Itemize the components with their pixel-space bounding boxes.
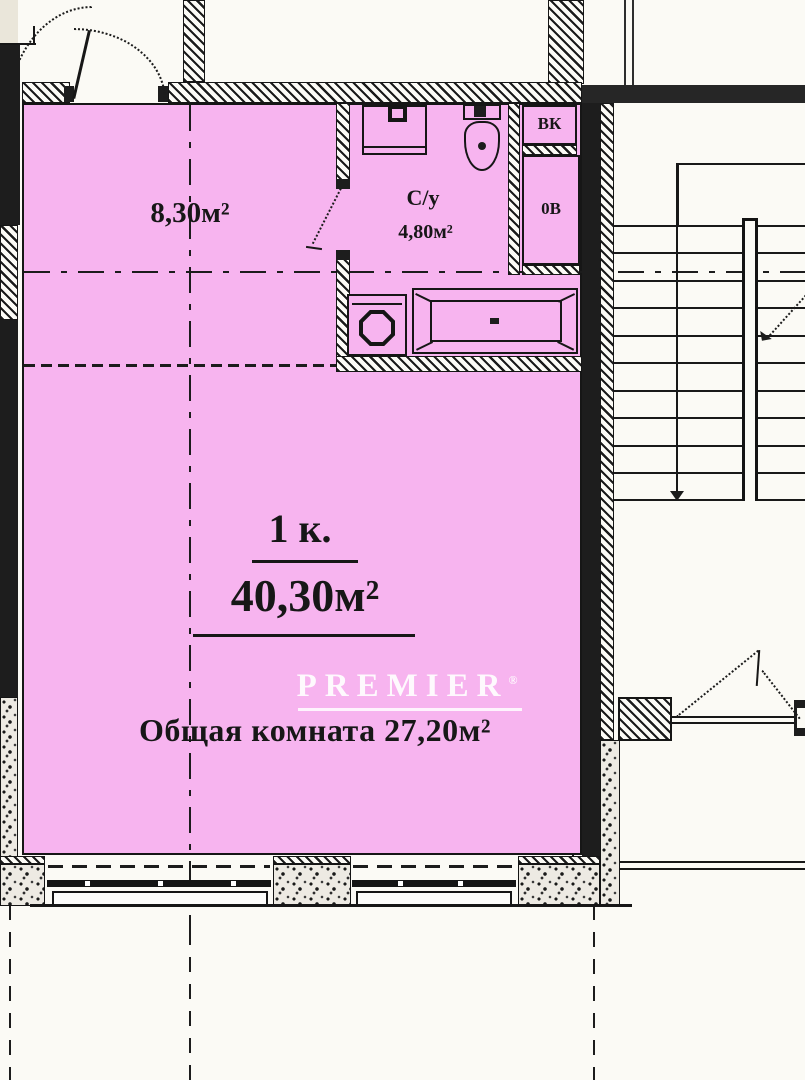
bathtub-drain bbox=[490, 318, 499, 324]
stair-tread bbox=[614, 445, 805, 447]
faucet-icon bbox=[388, 105, 407, 122]
bathroom-area-label: 4,80м² bbox=[378, 222, 473, 243]
window-mullion bbox=[85, 881, 90, 886]
stairwell-wall bbox=[600, 103, 614, 740]
wall-segment bbox=[548, 0, 584, 84]
door-leaf bbox=[756, 650, 761, 686]
door-swing bbox=[761, 670, 800, 719]
axis-line bbox=[24, 271, 805, 273]
washing-machine-lid bbox=[352, 303, 402, 305]
room-type-label: 1 к. bbox=[240, 508, 360, 550]
stair-tread bbox=[614, 390, 805, 392]
balcony-slab-line bbox=[30, 904, 632, 907]
threshold-line bbox=[672, 722, 796, 724]
bathroom-wall bbox=[336, 103, 350, 187]
threshold-line bbox=[672, 716, 796, 718]
exterior-wall-left bbox=[0, 225, 18, 320]
wall-segment bbox=[620, 868, 805, 870]
stair-tread bbox=[614, 472, 805, 474]
wall-segment bbox=[620, 861, 805, 863]
stair-tread bbox=[614, 417, 805, 419]
watermark: PREMIER® bbox=[282, 668, 532, 705]
label-underline bbox=[193, 634, 415, 637]
door-swing bbox=[676, 650, 759, 718]
room-divider-line bbox=[24, 364, 336, 367]
room-caption-label: Общая комната 27,20м² bbox=[80, 714, 550, 748]
window-mullion bbox=[158, 881, 163, 886]
stair-tread bbox=[614, 307, 805, 309]
stair-tread bbox=[614, 252, 805, 254]
room-area-label: 40,30м² bbox=[185, 572, 425, 620]
door-jamb bbox=[336, 250, 350, 260]
stair-tread bbox=[614, 280, 805, 282]
stair-direction-line bbox=[767, 295, 805, 339]
arrowhead-icon bbox=[760, 329, 772, 341]
wall-segment bbox=[624, 0, 626, 85]
washing-machine-drum-inner bbox=[363, 314, 391, 342]
hallway-area-label: 8,30м² bbox=[100, 198, 280, 228]
window-frame bbox=[352, 880, 516, 887]
bathroom-name-label: С/у bbox=[388, 186, 458, 209]
wall-segment bbox=[508, 103, 520, 275]
wall-segment bbox=[522, 145, 577, 155]
vent-shaft-ov-label: 0В bbox=[522, 200, 580, 218]
bathroom-wall bbox=[336, 356, 582, 372]
exterior-wall-left bbox=[0, 45, 20, 225]
entry-door-swing bbox=[74, 28, 166, 100]
wall-pier bbox=[518, 864, 600, 906]
window-sill bbox=[273, 856, 351, 864]
window bbox=[48, 865, 270, 868]
label-underline bbox=[252, 560, 358, 563]
window-sill bbox=[0, 856, 45, 864]
toilet-drain bbox=[478, 142, 486, 150]
wall-pier bbox=[0, 864, 45, 906]
stair-landing bbox=[677, 163, 805, 225]
exterior-wall-left bbox=[0, 320, 18, 697]
exterior-wall-right bbox=[582, 103, 600, 905]
wall-segment bbox=[618, 697, 672, 741]
stair-tread bbox=[614, 499, 805, 501]
wall-segment bbox=[22, 82, 70, 103]
vent-shaft-vk-label: ВК bbox=[522, 115, 577, 133]
window-mullion bbox=[398, 881, 403, 886]
stair-tread bbox=[614, 335, 805, 337]
watermark-underline bbox=[298, 708, 522, 711]
stair-guide-line bbox=[676, 163, 678, 493]
wall-segment bbox=[632, 0, 634, 85]
toilet-button bbox=[474, 106, 486, 117]
floor-plan: ВК 0В bbox=[0, 0, 805, 1080]
wall-segment bbox=[522, 265, 580, 275]
window-mullion bbox=[231, 881, 236, 886]
stairwell-wall bbox=[600, 740, 620, 905]
wall-segment bbox=[183, 0, 205, 82]
stair-tread bbox=[614, 362, 805, 364]
axis-line bbox=[593, 905, 595, 1080]
wall-pier bbox=[273, 864, 351, 906]
stair-tread bbox=[614, 225, 805, 227]
window-mullion bbox=[458, 881, 463, 886]
exterior-wall-left bbox=[0, 697, 18, 857]
watermark-text: PREMIER bbox=[297, 668, 509, 704]
corner-strip bbox=[0, 0, 18, 45]
door-jamb bbox=[336, 179, 350, 189]
wall-segment bbox=[582, 85, 805, 103]
axis-line bbox=[9, 905, 11, 1080]
sink-edge bbox=[364, 146, 425, 148]
window bbox=[353, 865, 516, 868]
axis-line bbox=[189, 930, 191, 1080]
wall-segment bbox=[168, 82, 582, 103]
window-sill bbox=[518, 856, 600, 864]
registered-mark-icon: ® bbox=[508, 673, 517, 687]
stair-stringer bbox=[742, 218, 758, 501]
